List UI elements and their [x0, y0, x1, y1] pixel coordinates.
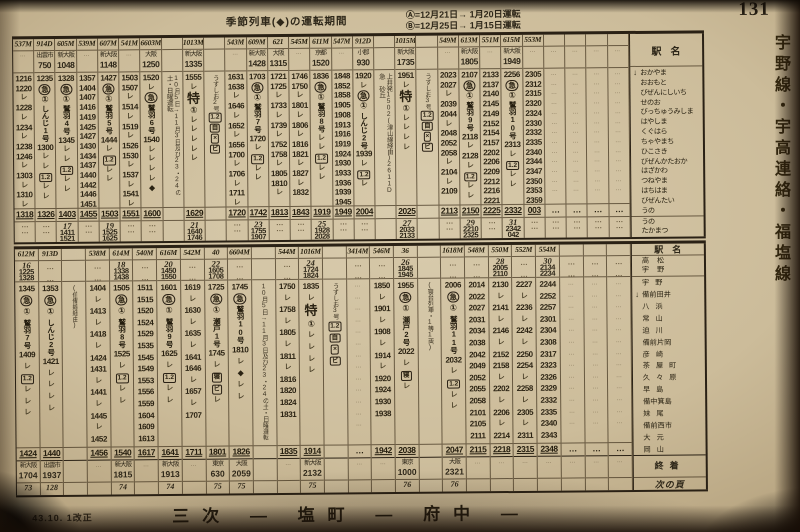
train-number: 537M	[13, 39, 33, 51]
station-name: はやしま	[641, 117, 701, 127]
ferry-connection-cell: ……	[524, 217, 544, 238]
time-cell: 2118	[462, 132, 478, 142]
arrival-time: …	[609, 203, 629, 216]
no-service-dots: …	[560, 256, 583, 268]
time-cell: 1631	[228, 72, 244, 82]
arrival-time: 1641	[159, 446, 182, 459]
season-note-b: Ⓑ=12月25日→ 1月15日運転	[406, 18, 521, 32]
train-column-607M: 607M新大阪11481427急①鷲羽5号1444レ1.2レレ150319152…	[98, 38, 121, 241]
no-service-dots: …	[568, 278, 575, 290]
origin-cell: 新大阪1428	[247, 49, 267, 71]
origin-time: 1315	[268, 58, 288, 68]
reserved-seat-mark: ①	[190, 106, 197, 116]
pass-mark: レ	[498, 418, 505, 430]
no-service-dots: …	[88, 461, 111, 473]
train-times: 2133213721402145214921522154215722022206…	[480, 69, 501, 204]
pass-mark: レ	[189, 317, 196, 329]
no-service-dots: …	[39, 261, 62, 273]
train-column-612M: 612M16122513281345急①鷲羽7号1409レ1.2レレレ1424新…	[14, 249, 41, 495]
time-cell: 1725	[270, 82, 286, 92]
station-name: 大元	[643, 432, 703, 442]
terminal-cell: …	[277, 458, 300, 480]
time-cell: 2332	[540, 395, 556, 407]
no-service-dots: …	[291, 226, 311, 232]
origin-station: 新大阪	[98, 50, 118, 59]
ferry-connection-cell	[62, 261, 85, 282]
pass-mark: レ	[20, 94, 27, 104]
train-times: 1235急①しんじ1号1300レレ1.2レレ	[35, 73, 56, 208]
buffet-icon: ビ	[422, 142, 433, 152]
train-column-blank: ……………………………………………	[565, 34, 588, 237]
train-column-552M: 552M……2227レ2236レ2242レ22502254レ2258レ2305レ…	[512, 245, 538, 491]
no-service-dots: …	[465, 269, 488, 279]
page-reference	[585, 477, 608, 490]
time-cell: 1446	[80, 190, 96, 200]
pass-mark: レ	[234, 199, 241, 207]
time-cell: 2227	[516, 279, 532, 291]
terminal-cell: 出雲市1937	[40, 460, 63, 482]
class-1-2-icon: 1.2	[421, 111, 434, 121]
pass-mark: レ	[64, 185, 71, 195]
station-name: 宇野	[642, 277, 702, 287]
station-name: くぐはら	[641, 126, 701, 136]
time-cell: 2022	[398, 346, 414, 358]
class-1-2-mark: 1.2	[506, 160, 519, 171]
time-cell: 1238	[16, 142, 32, 152]
arrival-time: 2348	[538, 443, 561, 456]
no-service-dots: …	[573, 128, 580, 138]
no-service-dots: …	[355, 292, 362, 304]
ferry-connection-cell: 1612251328	[15, 261, 38, 282]
train-number: 912D	[353, 36, 373, 48]
train-times: …………………………………	[560, 277, 584, 442]
pass-mark: レ	[275, 111, 282, 121]
page-reference	[420, 479, 443, 492]
ferry-connection-cell: 2618451945	[394, 258, 417, 279]
class-1-2-mark: 1.2	[315, 153, 328, 164]
terminal-time: 1815	[112, 469, 135, 479]
terminal-station: 大阪	[230, 459, 253, 468]
time-cell: 1924	[375, 384, 391, 396]
no-service-dots: …	[568, 313, 575, 325]
note-column: うずしお3号1.2自×ビ	[416, 36, 439, 239]
time-cell: 1404	[89, 283, 105, 295]
time-cell: 1503	[121, 73, 137, 83]
train-number	[418, 246, 441, 258]
terminal-station: 東京	[396, 458, 419, 467]
train-name: 鷲羽5号	[105, 105, 113, 135]
station-name: 岡山	[643, 444, 703, 454]
express-icon: 急	[234, 293, 246, 304]
ferry-connection-cell: 2519282028	[312, 219, 332, 240]
no-service-dots: …	[228, 271, 251, 281]
class-1-2-mark: 1.2	[421, 110, 434, 121]
time-cell: 1303	[16, 171, 32, 181]
train-column-543M: 543M…16311638レ1646レ1652レ16561700レ1706レ17…	[225, 37, 248, 240]
time-cell: 2140	[483, 90, 499, 100]
time-cell: 1505	[113, 282, 129, 294]
class-1-2-icon: 1.2	[506, 161, 519, 171]
no-service-dots: …	[592, 325, 599, 337]
pass-mark: レ	[21, 200, 28, 208]
train-name: 鷲羽4号	[62, 105, 70, 135]
train-times: 1920レ急①しんじ2号1939レ1.2レ	[353, 70, 374, 205]
time-cell: 2133	[482, 70, 498, 80]
arrival-time	[206, 207, 226, 220]
origin-cell: 新大阪1048	[56, 51, 76, 73]
page-reference	[514, 478, 537, 491]
time-cell: 1852	[334, 81, 350, 91]
pass-mark: レ	[521, 314, 528, 326]
arrival-time: 1835	[277, 445, 300, 458]
arrival-time: 1711	[182, 446, 205, 459]
pass-mark: レ	[48, 368, 55, 380]
terminal-cell: 大阪2059	[230, 458, 253, 480]
pass-mark: レ	[276, 188, 283, 198]
time-cell: 1526	[122, 141, 138, 151]
terminal-cell	[325, 457, 348, 479]
train-times: …………………………………	[565, 68, 586, 203]
arrival-time: 1826	[230, 445, 253, 458]
ferry-connection-cell: 3021342234	[536, 257, 559, 278]
arrival-time: 003	[524, 204, 544, 217]
sleeper-mark: 寝	[212, 371, 223, 383]
no-service-dots: …	[616, 371, 623, 383]
pass-mark: レ	[127, 112, 134, 122]
express-icon: 急	[210, 293, 222, 304]
train-column-545M: 545M…17461750レ1801レ1806レ18161821レ1827レ18…	[289, 37, 312, 240]
class-1-2-icon: 1.2	[208, 113, 221, 123]
time-cell: 2101	[470, 407, 486, 419]
reserved-seat-mark: ①	[254, 93, 261, 103]
seasonal-diamond-icon: ◆	[149, 184, 155, 193]
time-cell: 2347	[526, 167, 542, 177]
pass-mark: レ	[21, 132, 28, 142]
origin-cell	[204, 50, 224, 72]
next-section-title: 三次 ― 塩町 ― 府中 ―	[172, 499, 531, 527]
time-cell: 1745	[208, 348, 224, 360]
no-service-dots: …	[36, 228, 56, 234]
train-times: 1505急①鷲羽8号1525レ1.2レレ	[110, 281, 134, 446]
no-service-dots: …	[370, 258, 393, 270]
station-name: 備前片岡	[643, 337, 703, 347]
ferry-connection-cell: 1714111521	[57, 221, 77, 242]
dining-icon: ×	[211, 134, 219, 144]
station-name: ひこさき	[641, 146, 701, 156]
no-service-dots: …	[594, 108, 601, 118]
train-number: 605M	[55, 39, 75, 51]
no-service-dots: …	[551, 118, 558, 128]
no-service-dots: …	[584, 268, 607, 278]
time-cell: 2209	[483, 167, 499, 177]
time-cell: 1945	[335, 198, 351, 206]
pass-mark: レ	[446, 177, 453, 187]
ferry-connection-cell: ……	[560, 256, 583, 277]
origin-station: 新大阪	[247, 49, 267, 58]
train-number: 553M	[523, 35, 543, 47]
train-column-542M: 542M……1619レ1630レ1635レ16411646レ1657レ17071…	[181, 248, 207, 494]
pass-mark: レ	[284, 293, 291, 305]
ferry-arr-time: 1945	[394, 272, 417, 278]
note-column: 10月5日→11月3日及び23・24の土・日曜運転	[252, 247, 278, 493]
ferry-connection-cell: ……	[512, 257, 535, 278]
pass-mark: レ	[308, 365, 315, 377]
pass-mark: レ	[522, 395, 529, 407]
pass-mark: レ	[127, 132, 134, 142]
no-service-dots: …	[586, 46, 606, 56]
no-service-dots: …	[227, 227, 247, 233]
arrival-time: 1455	[78, 208, 98, 221]
pass-mark: レ	[148, 174, 155, 184]
station-label: 駅名	[632, 243, 704, 256]
terminal-cell: …	[585, 455, 608, 477]
pass-mark: レ	[275, 91, 282, 101]
no-service-dots: …	[142, 227, 162, 233]
train-number: 616M	[157, 248, 180, 260]
train-number: 554M	[536, 245, 559, 257]
page-reference: 75	[230, 480, 253, 493]
no-service-dots: …	[277, 459, 300, 471]
time-cell: 2353	[526, 186, 542, 196]
time-cell: 1750	[279, 281, 295, 293]
time-cell: 2256	[504, 70, 520, 80]
time-cell: 1745	[232, 281, 248, 293]
time-cell: 2149	[483, 109, 499, 119]
time-cell: 2049	[469, 360, 485, 372]
train-times: 2244225222572301230423082317232323262329…	[536, 278, 560, 443]
train-column-3414M: 3414M……………………………………………	[346, 246, 372, 492]
time-cell: 1613	[138, 433, 154, 445]
arrival-time: 1318	[14, 208, 34, 221]
origin-cell: …	[332, 48, 352, 70]
no-service-dots: …	[568, 336, 575, 348]
no-service-dots: …	[592, 336, 599, 348]
no-service-dots: …	[594, 147, 601, 157]
train-number: 611M	[310, 37, 330, 49]
origin-time: 750	[34, 60, 54, 70]
no-service-dots: …	[594, 137, 601, 147]
no-service-dots: …	[355, 327, 362, 339]
origin-station: 新大阪	[56, 51, 76, 60]
no-service-dots: …	[441, 269, 464, 279]
pass-mark: レ	[521, 372, 528, 384]
train-times: 1520レ急鷲羽6号1540レレレレ◆	[141, 72, 162, 207]
train-column-614M: 614M18133814381505急①鷲羽8号1525レ1.2レレ1540新大…	[110, 248, 136, 494]
train-times: 15031507レ1514レ1519レ15261530レ1537レ1541レ	[119, 72, 140, 207]
time-cell: 1625	[161, 348, 177, 360]
time-cell: 1529	[137, 329, 153, 341]
arrival-time: 1629	[184, 207, 204, 220]
train-number	[607, 244, 630, 256]
origin-cell: …	[119, 50, 139, 72]
time-cell: 1507	[122, 83, 138, 93]
origin-cell	[374, 48, 394, 70]
terminal-cell: …	[372, 457, 395, 479]
pass-mark: レ	[318, 133, 325, 143]
train-times: 1619レ1630レ1635レ16411646レ1657レ1707	[181, 281, 205, 446]
time-cell: 1806	[292, 120, 308, 130]
origin-station: 新大阪	[501, 47, 521, 56]
ferry-arr-time: 1746	[185, 235, 205, 241]
time-cell: 1519	[122, 122, 138, 132]
time-cell: 1345	[18, 283, 34, 295]
dining-mark: ×	[331, 343, 339, 355]
train-column-541M: 541M…15031507レ1514レ1519レ15261530レ1537レ15…	[119, 38, 142, 241]
no-service-dots: …	[355, 373, 362, 385]
station-label: 駅名	[630, 33, 702, 67]
time-cell: 1933	[335, 168, 351, 178]
terminal-time: 2321	[443, 466, 466, 476]
station-name: おかやま	[640, 67, 700, 77]
train-column-blank: ……………………………………………	[608, 34, 631, 237]
no-service-dots: …	[615, 176, 622, 186]
train-times: 1836急①鷲羽8号レレ1.2レレ	[311, 71, 332, 206]
no-service-dots: …	[565, 46, 585, 56]
ferry-connection-cell: ……	[347, 258, 370, 279]
train-name: 鷲羽7号	[23, 319, 31, 349]
direction-arrow-icon: ↓	[635, 290, 639, 299]
terminal-cell: …	[538, 456, 561, 478]
train-column-611M: 611M京都15201836急①鷲羽8号レレ1.2レレ1919251928202…	[310, 37, 333, 240]
time-cell: 2022	[469, 291, 485, 303]
train-number: 913D	[39, 249, 62, 261]
no-service-dots: …	[615, 79, 622, 89]
direction-arrow-icon: ↓	[633, 68, 637, 77]
page-reference	[491, 478, 514, 491]
arrival-time: 2025	[397, 205, 417, 218]
pass-mark: レ	[119, 383, 126, 395]
time-cell: 1559	[138, 398, 154, 410]
arrival-time	[253, 445, 276, 458]
pass-mark: レ	[403, 133, 410, 143]
time-cell: 2038	[469, 337, 485, 349]
no-service-dots: …	[133, 272, 156, 282]
class-1-2-icon: 1.2	[328, 322, 341, 332]
time-cell: 1901	[374, 303, 390, 315]
class-1-2-mark: 1.2	[163, 371, 176, 383]
pass-mark: レ	[379, 338, 386, 350]
no-service-dots: …	[615, 127, 622, 137]
time-cell: 2105	[470, 418, 486, 430]
train-number: 545M	[289, 37, 309, 49]
ferry-connection-cell	[252, 259, 275, 280]
pass-mark: レ	[48, 403, 55, 415]
no-service-dots: …	[438, 47, 458, 57]
time-cell: 2311	[517, 430, 533, 442]
ferry-connection-cell	[323, 258, 346, 279]
train-column-609M: 609M新大阪14281703急①鷲羽7号1720レ1.2レレ174223175…	[247, 37, 270, 240]
arrival-time: 2225	[482, 204, 502, 217]
pass-mark: レ	[166, 395, 173, 407]
train-times: …………………………………	[347, 279, 371, 444]
pass-mark: レ	[20, 113, 27, 123]
page-reference: 75	[301, 480, 324, 493]
express-mark: 急	[44, 295, 56, 307]
time-cell: 1920	[355, 71, 371, 81]
no-service-dots: …	[594, 157, 601, 167]
no-service-dots: …	[594, 127, 601, 137]
time-cell: 2154	[483, 128, 499, 138]
next-page-label: 次の頁	[634, 476, 706, 490]
pass-mark: レ	[521, 290, 528, 302]
arrival-time: 1919	[312, 206, 332, 219]
pass-mark: レ	[166, 383, 173, 395]
terminal-time: 1000	[396, 467, 419, 477]
station-name: 備前西市	[643, 420, 703, 430]
time-cell: 1700	[228, 150, 244, 160]
no-service-dots: …	[228, 259, 251, 271]
note-text: 10月5日→11月3日及び23・24の土・日曜運転	[165, 75, 181, 204]
no-service-dots: …	[573, 147, 580, 157]
express-icon: 急	[115, 294, 127, 305]
no-service-dots: …	[552, 167, 559, 177]
time-cell: 1703	[249, 72, 265, 82]
pass-mark: レ	[497, 314, 504, 326]
time-cell: 2058	[441, 148, 457, 158]
train-column-blank: ……………………………………………	[583, 244, 609, 490]
terminal-time: 1937	[40, 470, 63, 480]
pass-mark: レ	[403, 358, 410, 370]
reserved-seat-mark: ①	[105, 94, 112, 104]
no-service-dots: …	[569, 394, 576, 406]
time-cell: 2141	[492, 302, 508, 314]
origin-cell	[162, 50, 182, 72]
time-cell: 2202	[483, 148, 499, 158]
train-name: 鷲羽6号	[147, 105, 155, 135]
origin-cell: 新大阪1335	[183, 50, 203, 72]
train-number: 551M	[480, 35, 500, 47]
time-cell: 1441	[90, 387, 106, 399]
pass-mark: レ	[361, 180, 368, 190]
time-cell: 1357	[79, 74, 95, 84]
express-mark: 急	[447, 291, 459, 303]
pass-mark: レ	[445, 119, 452, 129]
arrival-time: 2218	[490, 443, 513, 456]
no-service-dots: …	[355, 315, 362, 327]
time-cell: 2221	[484, 196, 500, 204]
pass-mark: レ	[190, 375, 197, 387]
no-service-dots: …	[615, 185, 622, 195]
class-1-2-mark: 1.2	[328, 320, 341, 332]
origin-cell: …	[608, 46, 628, 68]
no-service-dots: …	[355, 338, 362, 350]
ferry-connection-cell: 1813381438	[110, 260, 133, 281]
page-reference: 75	[206, 480, 229, 493]
page-reference: 74	[112, 481, 135, 494]
pass-mark: レ	[24, 396, 31, 408]
no-service-dots: …	[356, 408, 363, 420]
time-cell: 1733	[270, 101, 286, 111]
time-cell: 1657	[185, 386, 201, 398]
pass-mark: レ	[94, 294, 101, 306]
train-number	[544, 35, 564, 47]
time-cell: 1720	[249, 134, 265, 144]
pass-mark: レ	[214, 394, 221, 406]
time-cell: 1638	[228, 82, 244, 92]
no-service-dots: …	[614, 69, 621, 79]
origin-station: 大阪	[268, 49, 288, 58]
limited-express-mark: 特	[304, 304, 317, 319]
no-service-dots: …	[592, 348, 599, 360]
time-cell: 2052	[469, 372, 485, 384]
terminal-cell: …	[490, 456, 513, 478]
time-cell: 2044	[440, 109, 456, 119]
time-cell: 2216	[483, 187, 499, 197]
pass-mark: レ	[42, 192, 49, 202]
reserved-seat-mark: ①	[47, 306, 54, 318]
arrival-time: …	[545, 204, 565, 217]
train-name: 鷲羽9号	[165, 318, 173, 348]
